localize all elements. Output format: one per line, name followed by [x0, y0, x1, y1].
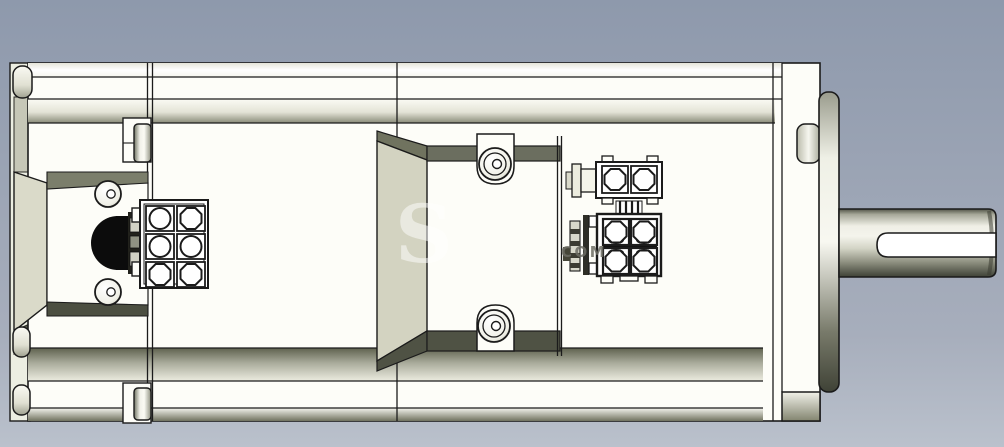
connector-pin [181, 264, 202, 285]
connector-pin [634, 251, 655, 272]
connector-pin [605, 169, 626, 190]
connector-pin [150, 236, 171, 257]
screw-hex-socket [493, 160, 502, 169]
end-boss [13, 385, 30, 415]
cad-viewport: S COM [0, 0, 1004, 447]
latch-piece [566, 172, 572, 189]
power-connector-6pin [132, 200, 208, 288]
clamp-cylinder [134, 124, 151, 162]
connector-pin [181, 208, 202, 229]
connector-foot [645, 276, 657, 283]
watermark-letters: COM [561, 243, 607, 261]
watermark-letter: S [395, 187, 453, 281]
connector-tab [602, 198, 613, 204]
cover-screw-bottom [477, 305, 514, 351]
connector-tab [647, 198, 658, 204]
bracket-side-wall [14, 172, 47, 331]
connector-pin [606, 222, 627, 243]
clamp-cylinder [134, 388, 151, 420]
latch-stripe [570, 229, 580, 234]
endcap-bottom-step [782, 392, 820, 421]
output-shaft [839, 209, 996, 277]
connector-foot [620, 276, 638, 281]
cable-clamp-bottom [123, 383, 151, 423]
connector-pin [181, 236, 202, 257]
bracket-screw-upper-socket [107, 190, 115, 198]
connector-pin [150, 208, 171, 229]
screw-hex-socket [492, 322, 501, 331]
endcap-plug-boss [797, 124, 820, 163]
latch-piece [581, 169, 597, 192]
connector-pin [606, 251, 627, 272]
shaft-keyway [877, 233, 996, 257]
end-boss [13, 327, 30, 357]
end-boss [13, 66, 32, 98]
cover-screw-top [477, 134, 514, 184]
cable-clamp-top [123, 118, 151, 162]
bracket-screw-lower-socket [107, 288, 115, 296]
housing-top-cap-band [28, 63, 782, 77]
bracket-bottom-shadow [47, 302, 148, 316]
connector-pin [150, 264, 171, 285]
connector-foot [601, 276, 613, 283]
latch-stripe [570, 263, 580, 268]
motor-side-view: S COM [0, 0, 1004, 447]
rear-flange [819, 92, 839, 392]
connector-pin [634, 222, 655, 243]
connector-pin [634, 169, 655, 190]
latch-piece [572, 164, 581, 197]
